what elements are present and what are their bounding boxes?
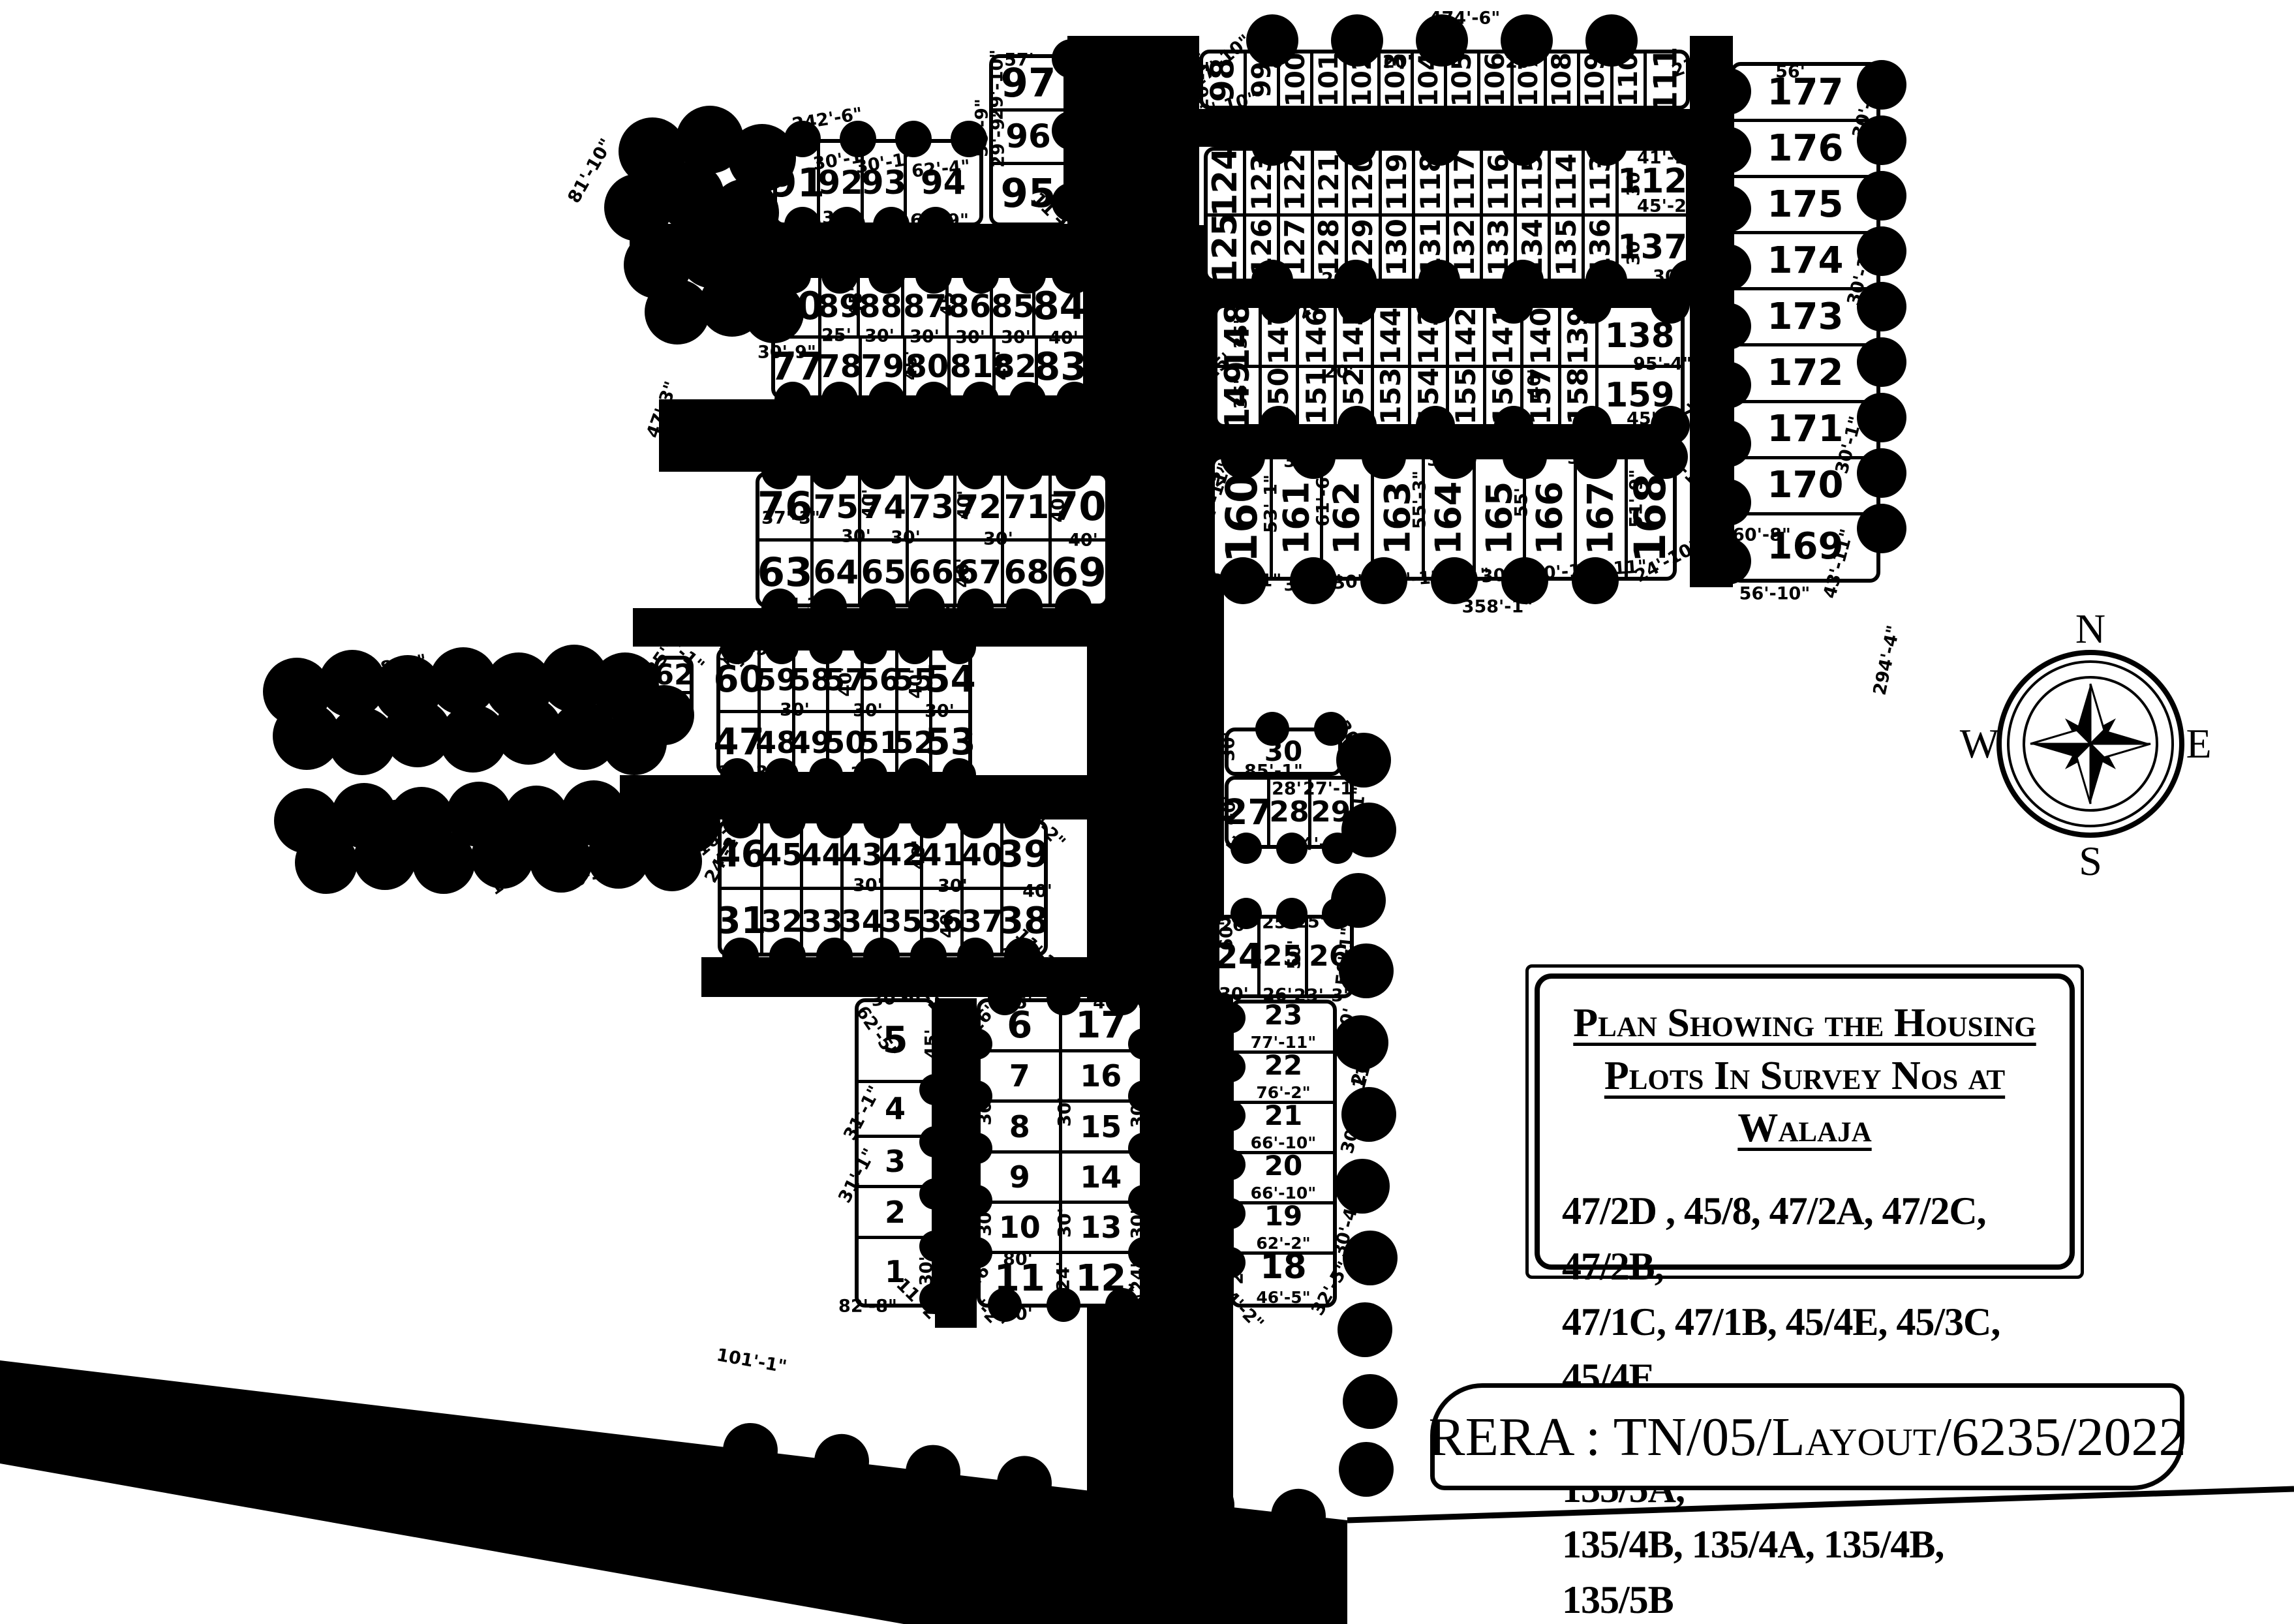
plot-row: 716 <box>981 1049 1140 1099</box>
dimension-label: 30' <box>1624 166 1644 196</box>
dimension-label: 35' <box>1231 379 1251 409</box>
dimension-label: 57' <box>1004 50 1034 70</box>
tree-icon <box>561 780 626 846</box>
dimension-label: 24' <box>1054 1261 1074 1291</box>
dimension-label: 30' <box>917 1256 937 1286</box>
plot-number-64: 64 <box>813 556 859 589</box>
compass-north-label: N <box>2075 605 2105 653</box>
plot-row: 2066'-10" <box>1234 1151 1333 1201</box>
plot-number-113: 113 <box>1586 153 1613 211</box>
title-box-inner: Plan Showing the Housing Plots In Survey… <box>1535 973 2075 1270</box>
dimension-label: 32'-10" <box>495 677 548 748</box>
plot-130: 130 <box>1379 217 1413 279</box>
tree-icon <box>814 1434 869 1489</box>
plot-141: 141 <box>1483 308 1520 365</box>
plot-number-34: 34 <box>841 906 883 936</box>
plot-number-135: 135 <box>1553 219 1580 276</box>
tree-icon <box>273 702 341 770</box>
dimension-label: 45' <box>938 286 958 316</box>
tree-icon <box>263 658 331 726</box>
plot-53: 53 <box>929 713 968 773</box>
plot-number-96: 96 <box>1005 120 1051 153</box>
plot-number-10: 10 <box>999 1212 1041 1242</box>
plot-31: 31 <box>722 890 760 953</box>
dimension-label: 28' <box>1272 779 1302 799</box>
plot-16: 16 <box>1059 1052 1140 1099</box>
plot-number-162: 162 <box>1330 482 1365 555</box>
plot-number-33: 33 <box>801 906 843 936</box>
plot-number-22: 22 <box>1264 1052 1302 1079</box>
plot-number-122: 122 <box>1281 153 1309 211</box>
plot-number-14: 14 <box>1080 1162 1122 1192</box>
plot-row: 125126127128129130131132133134135136137 <box>1208 213 1686 279</box>
dimension-label: 16'-4" <box>1671 115 1732 146</box>
compass-west-label: W <box>1960 720 1999 768</box>
plot-number-158: 158 <box>1565 367 1592 425</box>
compass-star-icon <box>1969 615 2212 873</box>
dimension-label: 101'-1" <box>715 1345 788 1377</box>
plot-number-40: 40 <box>961 840 1003 870</box>
dimension-label: 20' <box>1383 52 1413 72</box>
plot-number-20: 20 <box>1264 1152 1302 1180</box>
plot-158: 158 <box>1558 368 1595 425</box>
plot-number-114: 114 <box>1553 153 1580 211</box>
plot-143: 143 <box>1408 308 1445 365</box>
dimension-label: 40' <box>909 840 929 870</box>
tree-icon <box>619 117 686 185</box>
plot-number-115: 115 <box>1519 153 1546 211</box>
dimension-label: 32'-11" <box>1211 571 1282 591</box>
plot-number-4: 4 <box>885 1094 906 1124</box>
plot-102: 102 <box>1343 54 1377 106</box>
dimension-label: 40' <box>1201 935 1221 965</box>
plot-number-154: 154 <box>1415 367 1443 425</box>
dimension-label: 45' <box>901 350 921 380</box>
dimension-label: 30'-2" <box>1688 290 1720 352</box>
dimension-label: 47'-3" <box>643 378 682 440</box>
plot-124: 124 <box>1208 151 1243 213</box>
dimension-label: 45'-4" <box>1627 409 1685 429</box>
plot-153: 153 <box>1371 368 1408 425</box>
plot-row: 169 <box>1734 512 1876 579</box>
plot-number-106: 106 <box>1482 52 1508 107</box>
dimension-label: 45' <box>1003 993 1033 1013</box>
plot-number-44: 44 <box>801 840 843 870</box>
dimension-label: 30' <box>1427 450 1457 470</box>
plot-number-21: 21 <box>1264 1102 1302 1129</box>
dimension-label: 22' <box>1227 1255 1247 1285</box>
plot-9: 9 <box>981 1154 1059 1201</box>
dimension-label: 51'-9" <box>1627 469 1647 528</box>
dimension-label: 37'-3" <box>761 508 820 529</box>
dimension-label: 30' <box>841 527 871 547</box>
dimension-label: 30' <box>780 700 810 720</box>
plot-number-31: 31 <box>716 903 767 940</box>
plot-145: 145 <box>1334 308 1371 365</box>
dimension-label: 30' <box>853 701 883 721</box>
plot-row: 172 <box>1734 343 1876 399</box>
plot-44: 44 <box>800 823 840 887</box>
dimension-label: 32'-3" <box>769 595 828 615</box>
plot-number-130: 130 <box>1383 219 1411 276</box>
plot-number-45: 45 <box>761 840 803 870</box>
dimension-label: 30' <box>1624 236 1644 266</box>
plot-127: 127 <box>1277 217 1311 279</box>
plot-number-104: 104 <box>1416 52 1442 107</box>
dimension-label: 30' <box>822 208 852 228</box>
plot-170: 170 <box>1734 459 1876 512</box>
plot-number-145: 145 <box>1340 307 1368 365</box>
dimension-label: 45' <box>922 1029 942 1059</box>
plot-51: 51 <box>861 713 895 773</box>
dimension-label: 50' <box>1285 940 1305 970</box>
plot-number-147: 147 <box>1265 307 1292 365</box>
plot-row: 170 <box>1734 456 1876 512</box>
plot-175: 175 <box>1734 178 1876 231</box>
plot-number-134: 134 <box>1519 219 1546 276</box>
plot-row: 2 <box>859 1185 932 1236</box>
plot-number-39: 39 <box>998 836 1049 873</box>
tree-icon <box>412 831 475 894</box>
plot-37: 37 <box>960 890 1000 953</box>
dimension-label: 30' <box>925 701 955 722</box>
plot-number-119: 119 <box>1383 153 1411 211</box>
plot-row: 63646566676869 <box>759 538 1105 604</box>
plot-number-13: 13 <box>1080 1212 1122 1242</box>
plot-row: 1962'-2" <box>1234 1201 1333 1251</box>
plot-number-18: 18 <box>1260 1251 1306 1284</box>
plot-number-167: 167 <box>1583 482 1619 555</box>
road <box>1067 36 1199 310</box>
dimension-label: 40' <box>836 667 856 697</box>
plot-number-140: 140 <box>1527 307 1555 365</box>
dimension-label: 118'-1" <box>355 651 428 682</box>
dimension-label: 35' <box>1231 319 1251 349</box>
plot-number-54: 54 <box>925 662 976 698</box>
tree-icon <box>617 784 682 850</box>
plot-number-2: 2 <box>885 1197 906 1227</box>
plot-row: 4645444342414039 <box>722 823 1044 887</box>
compass-rose: N E S W <box>1969 615 2212 873</box>
plot-79: 79 <box>859 339 903 396</box>
plot-number-141: 141 <box>1490 307 1517 365</box>
tree-icon <box>295 831 358 894</box>
plan-title-line-2: Plots In Survey Nos at Walaja <box>1562 1050 2047 1155</box>
plot-21: 2166'-10" <box>1234 1104 1333 1151</box>
plot-number-35: 35 <box>881 906 923 936</box>
plot-84: 84 <box>1032 278 1083 335</box>
plot-row: 149150151152153154155156157158159 <box>1217 365 1681 425</box>
dimension-label: 55' <box>1512 487 1532 517</box>
tree-icon <box>1088 1467 1143 1522</box>
plot-69: 69 <box>1048 542 1105 604</box>
dimension-label: 30' <box>983 529 1013 549</box>
dimension-label: 40' <box>906 669 926 699</box>
plot-number-175: 175 <box>1767 187 1844 223</box>
dimension-label: 56'-10" <box>1739 584 1811 604</box>
plot-number-69: 69 <box>1051 553 1107 592</box>
dimension-label: 82'-8" <box>838 1296 897 1317</box>
plot-140: 140 <box>1520 308 1557 365</box>
tree-icon <box>676 106 744 174</box>
tree-icon <box>624 231 692 299</box>
dimension-label: 30' <box>891 528 921 548</box>
plot-45: 45 <box>760 823 800 887</box>
plot-113: 113 <box>1582 151 1615 213</box>
dimension-label: 30' <box>1055 1208 1075 1238</box>
dimension-label: 294'-4" <box>1870 624 1904 697</box>
road <box>0 1360 1347 1624</box>
tree-icon <box>550 702 618 770</box>
plot-155: 155 <box>1446 368 1483 425</box>
plot-154: 154 <box>1408 368 1445 425</box>
plan-title-line-1: Plan Showing the Housing <box>1562 997 2047 1050</box>
dimension-label: 474'-6" <box>1430 8 1501 29</box>
plot-number-124: 124 <box>1208 147 1242 217</box>
dimension-label: 69'-9" <box>910 211 969 231</box>
dimension-label: 40' <box>1048 493 1069 523</box>
plot-132: 132 <box>1446 217 1480 279</box>
plot-114: 114 <box>1548 151 1582 213</box>
plot-66: 66 <box>906 542 953 604</box>
tree-icon <box>642 831 702 891</box>
plot-number-123: 123 <box>1247 153 1275 211</box>
dimension-label: 25'-2" <box>1701 152 1733 213</box>
plot-number-153: 153 <box>1377 367 1405 425</box>
plot-number-174: 174 <box>1767 243 1844 279</box>
plot-14: 14 <box>1059 1154 1140 1201</box>
tree-icon <box>1343 1374 1398 1429</box>
plot-35: 35 <box>880 890 920 953</box>
dimension-label: 53'-1" <box>1261 474 1281 533</box>
plot-number-108: 108 <box>1549 52 1575 107</box>
plot-7: 7 <box>981 1052 1059 1099</box>
plot-row: 914 <box>981 1150 1140 1201</box>
dimension-label: 30' <box>1128 1209 1148 1239</box>
plot-172: 172 <box>1734 346 1876 399</box>
dimension-label: 81'-10" <box>564 135 617 207</box>
dimension-label: 139'-10" <box>549 863 634 894</box>
plot-125: 125 <box>1208 217 1243 279</box>
plot-number-133: 133 <box>1485 219 1512 276</box>
plot-number-109: 109 <box>1582 52 1608 107</box>
dimension-label: 30' <box>939 602 969 622</box>
plot-row: 2276'-2" <box>1234 1050 1333 1101</box>
block-31-46: 46454443424140393132333435363738 <box>718 820 1048 957</box>
plot-136: 136 <box>1582 217 1615 279</box>
road <box>659 399 1148 472</box>
dimension-label: 19'-5" <box>485 850 545 900</box>
dimension-label: 30' <box>1333 1006 1360 1040</box>
dimension-label: 40' <box>953 558 973 588</box>
tree-icon <box>699 271 765 337</box>
compass-east-label: E <box>2186 720 2211 768</box>
dimension-label: 45' <box>992 350 1013 380</box>
plot-121: 121 <box>1311 151 1345 213</box>
dimension-label: 45'-2" <box>1637 196 1696 217</box>
dimension-label: 20' <box>1321 269 1351 290</box>
plot-131: 131 <box>1412 217 1446 279</box>
plot-number-129: 129 <box>1349 219 1377 276</box>
plot-90: 90 <box>775 278 818 335</box>
tree-icon <box>354 827 416 890</box>
dimension-label: 30' <box>1653 267 1683 287</box>
dimension-label: 20' <box>1505 52 1535 72</box>
plot-104: 104 <box>1411 54 1444 106</box>
plot-19: 1962'-2" <box>1234 1204 1333 1251</box>
plot-number-161: 161 <box>1279 482 1314 555</box>
plot-number-171: 171 <box>1767 411 1844 448</box>
plot-119: 119 <box>1379 151 1413 213</box>
tree-icon <box>997 1456 1052 1510</box>
plot-33: 33 <box>800 890 840 953</box>
layout-plan: 9192939497969598991001011021031041051061… <box>0 0 2294 1624</box>
plot-85: 85 <box>990 278 1032 335</box>
plot-68: 68 <box>1001 542 1048 604</box>
dimension-label: 30' <box>975 1095 996 1126</box>
road <box>630 224 1093 279</box>
plot-number-143: 143 <box>1415 307 1443 365</box>
plot-number-8: 8 <box>1009 1112 1030 1142</box>
tree-icon <box>1338 1302 1392 1357</box>
dimension-label: 25' <box>821 326 851 346</box>
plot-108: 108 <box>1544 54 1577 106</box>
dimension-label: 61'-6" <box>1313 468 1334 527</box>
plot-number-155: 155 <box>1452 367 1480 425</box>
dimension-label: 95'-4" <box>1633 354 1692 375</box>
plot-number-71: 71 <box>1004 491 1050 523</box>
plot-number-131: 131 <box>1417 219 1445 276</box>
plot-number-68: 68 <box>1004 556 1050 589</box>
road <box>1144 998 1233 1520</box>
plot-number-172: 172 <box>1767 355 1844 391</box>
plot-number-23: 23 <box>1264 1002 1302 1029</box>
dimension-label: 30' <box>853 876 883 896</box>
tree-icon <box>1180 1478 1234 1533</box>
plot-number-90: 90 <box>770 287 823 326</box>
plot-34: 34 <box>840 890 880 953</box>
plot-number-29: 29 <box>1311 798 1351 827</box>
plot-50: 50 <box>826 713 861 773</box>
tree-icon <box>679 221 746 288</box>
tree-icon <box>906 1445 960 1500</box>
dimension-label: 40' <box>859 489 879 519</box>
plot-number-65: 65 <box>861 556 906 589</box>
plot-number-166: 166 <box>1533 482 1568 555</box>
dimension-label: 40' <box>1068 530 1098 551</box>
plot-number-53: 53 <box>925 724 976 761</box>
dimension-label: 30' <box>1128 1098 1148 1128</box>
rera-number: RERA : TN/05/Layout/6235/2022 <box>1429 1405 2186 1469</box>
tree-icon <box>384 699 451 767</box>
plot-120: 120 <box>1345 151 1379 213</box>
plot-101: 101 <box>1310 54 1343 106</box>
plot-number-79: 79 <box>861 351 904 382</box>
road <box>620 775 1161 820</box>
plot-number-3: 3 <box>885 1146 906 1176</box>
plot-116: 116 <box>1480 151 1514 213</box>
rera-box: RERA : TN/05/Layout/6235/2022 <box>1430 1383 2184 1490</box>
road <box>1198 109 1690 147</box>
plot-number-43: 43 <box>841 840 883 870</box>
plot-number-16: 16 <box>1080 1061 1122 1091</box>
plot-number-127: 127 <box>1281 219 1309 276</box>
block-138-159: 1481471461451441431421411401391381491501… <box>1214 304 1685 428</box>
dimension-label: 55'-3" <box>1410 470 1430 529</box>
plot-number-170: 170 <box>1767 467 1844 504</box>
tree-icon <box>604 174 672 241</box>
dimension-label: 25' <box>1262 913 1292 933</box>
tree-icon <box>645 279 710 345</box>
plot-139: 139 <box>1558 308 1595 365</box>
plot-number-32: 32 <box>761 906 803 936</box>
plot-number-126: 126 <box>1247 219 1275 276</box>
dimension-label: 40' <box>1022 881 1052 902</box>
plot-number-173: 173 <box>1767 299 1844 335</box>
plot-row: 148147146145144143142141140139138 <box>1217 308 1681 365</box>
dimension-label: 30' <box>1283 452 1313 472</box>
dimension-label: 60'-8" <box>1732 525 1791 545</box>
plot-number-120: 120 <box>1349 153 1377 211</box>
plot-number-110: 110 <box>1615 52 1642 107</box>
tree-icon <box>504 786 569 851</box>
dimension-label: 80' <box>1003 1249 1033 1270</box>
dimension-label: 30' <box>850 764 880 784</box>
dimension-label: 358'-1" <box>1462 597 1533 617</box>
dimension-label: 40' <box>1219 795 1240 825</box>
tree-icon <box>723 1423 778 1478</box>
survey-numbers-line-4: 135/4B, 135/4A, 135/4B, 135/5B <box>1562 1517 2047 1624</box>
plot-number-176: 176 <box>1767 130 1844 167</box>
plot-number-156: 156 <box>1490 367 1517 425</box>
dimension-label: 30' <box>1055 1097 1075 1127</box>
plot-number-125: 125 <box>1208 213 1242 283</box>
plot-115: 115 <box>1514 151 1548 213</box>
dimension-label: 30'-4" <box>1337 1094 1371 1156</box>
dimension-label: 30' <box>1567 448 1597 468</box>
plot-number-19: 19 <box>1264 1203 1302 1230</box>
dimension-label: 30' <box>938 876 968 896</box>
plot-144: 144 <box>1371 308 1408 365</box>
tree-icon <box>656 162 724 230</box>
plot-number-78: 78 <box>818 351 862 382</box>
dimension-label: 30' <box>955 328 985 348</box>
plot-32: 32 <box>760 890 800 953</box>
plot-123: 123 <box>1243 151 1277 213</box>
dimension-label: 32'-3" <box>718 763 777 783</box>
plot-122: 122 <box>1277 151 1311 213</box>
dimension-label: 41'-1" <box>1637 148 1696 168</box>
plot-147: 147 <box>1259 308 1296 365</box>
plot-number-121: 121 <box>1315 153 1343 211</box>
dimension-label: 40' <box>1048 328 1078 348</box>
plot-row: 175 <box>1734 175 1876 231</box>
dimension-label: 20' <box>1259 52 1289 72</box>
dimension-label: 24'-10" <box>1289 835 1360 855</box>
dimension-label: 26' <box>1262 985 1292 1005</box>
plot-number-136: 136 <box>1586 219 1613 276</box>
block-112-137: 1241231221211201191181171161151141131121… <box>1204 147 1690 283</box>
plot-row: 2377'-11" <box>1234 1004 1333 1050</box>
plot-52: 52 <box>895 713 930 773</box>
plot-number-73: 73 <box>909 491 955 523</box>
tree-icon <box>540 645 608 712</box>
dimension-label: 29'-9" <box>988 109 1009 168</box>
plot-number-132: 132 <box>1451 219 1478 276</box>
plot-number-15: 15 <box>1080 1112 1122 1142</box>
plot-number-28: 28 <box>1269 798 1309 827</box>
plot-number-9: 9 <box>1009 1162 1030 1192</box>
